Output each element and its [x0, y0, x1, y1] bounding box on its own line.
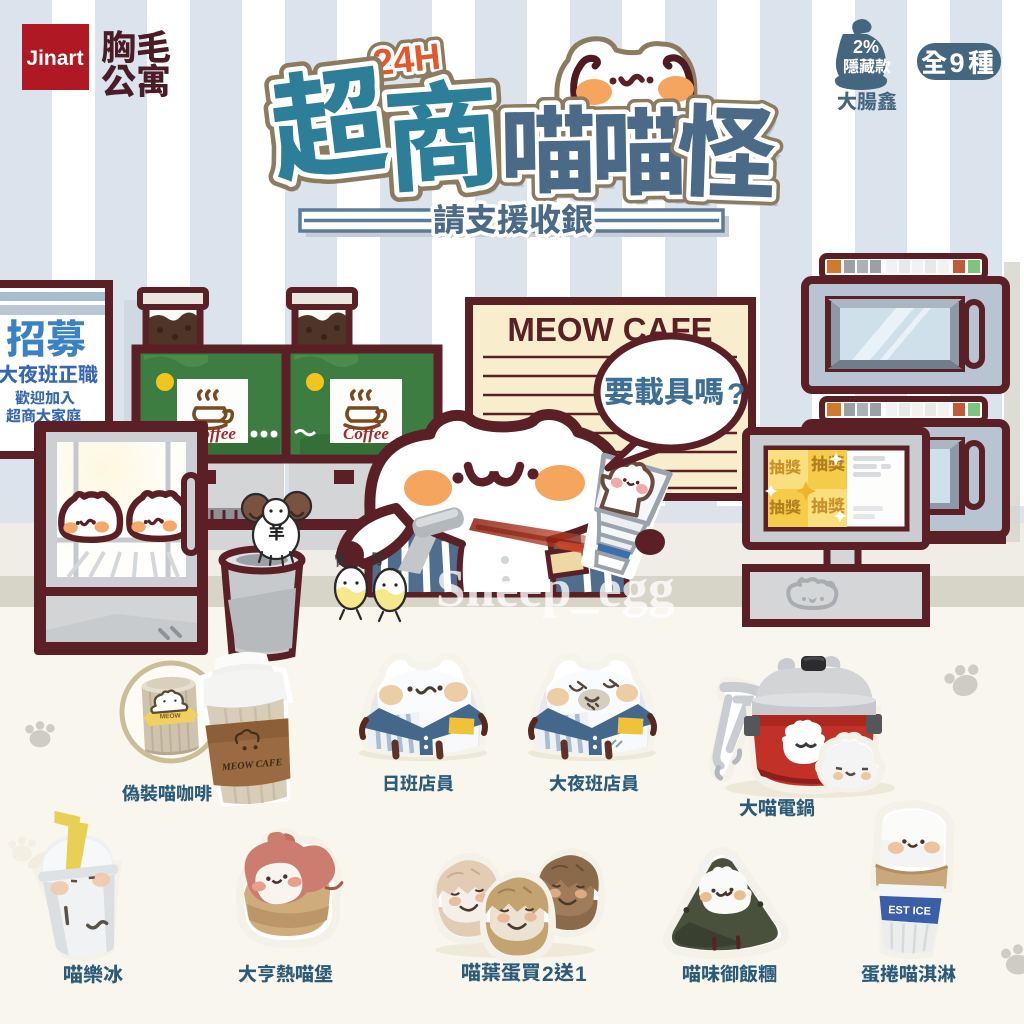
svg-text:Coffee: Coffee	[343, 424, 389, 443]
svg-text:Jinart: Jinart	[26, 47, 83, 70]
svg-text:9: 9	[949, 48, 964, 78]
svg-text:MEOW: MEOW	[160, 712, 182, 720]
svg-text:2: 2	[542, 963, 554, 986]
svg-text:Sheep_egg: Sheep_egg	[436, 560, 675, 618]
svg-text:EST ICE: EST ICE	[888, 904, 931, 917]
svg-text:2%: 2%	[853, 37, 879, 57]
svg-text:?: ?	[727, 378, 745, 411]
svg-text:1: 1	[575, 963, 587, 986]
